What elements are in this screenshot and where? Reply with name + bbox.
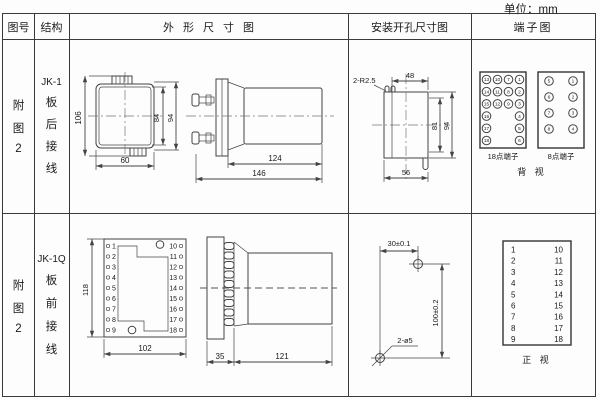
mounting-hole-bottom [128, 326, 136, 334]
terminal-number: 14 [554, 290, 563, 299]
page: 单位：mm 图号 结构 外形尺寸图 安装开孔尺寸图 端子图 附 图 2 JK-1… [0, 0, 600, 400]
terminal-screw [179, 297, 182, 300]
terminal-number: 4 [511, 279, 516, 288]
terminal-pin-number: 9 [507, 102, 510, 108]
terminal-number: 7 [112, 306, 116, 313]
dim-overall-height: 106 [74, 111, 83, 125]
terminal-pin-number: 10 [495, 77, 501, 83]
table-divider [3, 39, 595, 40]
terminal-number: 3 [112, 264, 116, 271]
dim-overall-height: 94 [442, 122, 451, 130]
relay-cover [248, 253, 332, 324]
relay-body-outline [118, 246, 168, 331]
terminal-pin-number: 14 [484, 89, 490, 95]
dim-inner-height: 81 [430, 122, 439, 130]
table-divider [69, 14, 70, 396]
terminal-number: 7 [511, 313, 516, 322]
terminal-screw-side [224, 300, 234, 307]
terminal-screw [106, 244, 109, 247]
terminal-pin-number: 6 [548, 95, 551, 101]
figure-char: 图 [13, 300, 25, 316]
terminal-pin-number: 17 [484, 126, 490, 132]
structure-char: 线 [46, 160, 58, 176]
mounting-hole-top [156, 241, 164, 249]
terminal-number: 9 [112, 327, 116, 334]
terminal-screw [179, 244, 182, 247]
terminal-number: 16 [554, 313, 563, 322]
terminal-number: 1 [511, 246, 516, 255]
terminal-number: 9 [511, 335, 516, 344]
terminal-number: 13 [169, 275, 177, 282]
terminal-screw [106, 297, 109, 300]
label-hole-size: 2-ø5 [397, 336, 412, 345]
terminal-screw [179, 286, 182, 289]
terminal-screw [106, 286, 109, 289]
terminal-pin-number: 4 [518, 114, 521, 120]
terminal-screw [106, 307, 109, 310]
dim-top-width: 48 [406, 71, 414, 80]
figure-cell-row1: 附 图 2 [3, 39, 34, 213]
terminal-pin-number: 16 [484, 114, 490, 120]
structure-char: 板 [46, 272, 58, 288]
terminal-number: 5 [112, 285, 116, 292]
stud-bottom [192, 132, 199, 144]
table-divider [471, 14, 472, 396]
label-corner-radius: 2-R2.5 [353, 76, 376, 85]
terminal-number: 13 [554, 279, 563, 288]
dim-width: 60 [121, 156, 130, 165]
terminal-screw-side [224, 271, 234, 278]
terminal-screw [179, 318, 182, 321]
label-18-point: 18点端子 [488, 151, 519, 161]
terminal-screw [106, 276, 109, 279]
figure-char: 图 [13, 120, 25, 136]
structure-model: JK-1 [41, 77, 62, 88]
header-terminal: 端子图 [471, 14, 595, 39]
structure-char: 板 [46, 94, 58, 110]
structure-char: 接 [46, 318, 58, 334]
terminal-pin-number: 15 [484, 102, 490, 108]
terminal-number: 8 [112, 317, 116, 324]
figure-char: 2 [15, 143, 21, 155]
terminal-screw [179, 265, 182, 268]
terminal-pin-number: 7 [548, 111, 551, 117]
terminal-screw [106, 265, 109, 268]
header-figure: 图号 [3, 14, 34, 39]
terminal-pin-number: 3 [572, 111, 575, 117]
stud-top [192, 94, 199, 106]
terminal-screw [179, 255, 182, 258]
terminal-screw-side [224, 319, 234, 326]
terminal-screw-side [224, 243, 234, 250]
dim-plate-depth: 35 [216, 352, 225, 361]
dim-overall-length: 146 [252, 169, 266, 178]
terminal-screw-side [224, 309, 234, 316]
terminal-screw [106, 255, 109, 258]
table-divider [3, 213, 595, 214]
terminal-screw [106, 318, 109, 321]
terminal-number: 11 [170, 254, 177, 261]
terminal-screw-side [224, 262, 234, 269]
terminal-diagram-rear: 131071141182151293164175186 51627384 18点… [478, 66, 590, 180]
terminal-screw [179, 307, 182, 310]
terminal-pin-number: 11 [495, 89, 500, 95]
terminal-pin-number: 2 [572, 95, 575, 101]
terminal-number: 17 [554, 324, 563, 333]
structure-char: 线 [46, 341, 58, 357]
label-rear-view: 背 视 [517, 166, 547, 177]
terminal-number: 18 [554, 335, 563, 344]
terminal-screw [179, 276, 182, 279]
terminal-number: 15 [169, 296, 177, 303]
structure-model: JK-1Q [37, 254, 65, 265]
dim-cover-length: 124 [268, 154, 282, 163]
terminal-number: 12 [554, 268, 563, 277]
header-outline: 外形尺寸图 [69, 14, 348, 39]
dim-height: 118 [81, 284, 90, 296]
structure-char: 前 [46, 295, 58, 311]
terminal-pin-number: 4 [572, 127, 575, 133]
terminal-screw-side [224, 252, 234, 259]
label-8-point: 8点端子 [548, 151, 575, 161]
terminal-number: 16 [169, 306, 177, 313]
terminal-number: 6 [511, 302, 516, 311]
figure-char: 附 [13, 97, 25, 113]
mounting-drawing-jk1: 2-R2.5 48 81 94 56 [350, 52, 468, 202]
figure-cell-row2: 附 图 2 [3, 213, 34, 398]
terminal-number: 1 [112, 243, 116, 250]
terminal-screw-side [224, 281, 234, 288]
structure-cell-row2: JK-1Q 板 前 接 线 [34, 213, 69, 398]
terminal-screw [179, 328, 182, 331]
terminal-number: 15 [554, 302, 563, 311]
table-divider [348, 14, 349, 396]
terminal-pin-number: 3 [518, 102, 521, 108]
terminal-pin-number: 12 [495, 102, 501, 108]
header-mounting: 安装开孔尺寸图 [348, 14, 471, 39]
dim-hole-spacing-v: 100±0.2 [431, 299, 440, 326]
dim-case-height: 84 [152, 114, 161, 122]
dim-bottom-width: 56 [402, 168, 410, 177]
terminal-screw [106, 328, 109, 331]
terminal-number: 4 [112, 275, 116, 282]
outline-drawing-jk1: 106 84 94 60 124 [76, 46, 341, 201]
mounting-drawing-jk1q: 30±0.1 2-ø5 100±0.2 [350, 236, 465, 391]
terminal-pin-number: 13 [484, 77, 490, 83]
terminal-block-top [112, 76, 132, 84]
terminal-number: 12 [169, 264, 177, 271]
outline-drawing-jk1q: 118 123456789101112131415161718 102 35 1… [82, 234, 337, 396]
terminal-number: 14 [169, 285, 177, 292]
dim-body-length: 121 [275, 352, 289, 361]
terminal-pin-number: 5 [548, 79, 551, 85]
terminal-number: 17 [169, 317, 177, 324]
terminal-number: 6 [112, 296, 116, 303]
terminal-number: 3 [511, 268, 516, 277]
structure-char: 后 [46, 116, 58, 132]
figure-char: 附 [13, 277, 25, 293]
dim-hole-spacing-h: 30±0.1 [388, 239, 411, 248]
label-front-view: 正 视 [522, 354, 552, 365]
dim-cover-height: 94 [166, 114, 175, 122]
terminal-pin-number: 7 [507, 77, 510, 83]
terminal-pin-number: 6 [518, 138, 521, 144]
terminal-screw-side [224, 290, 234, 297]
structure-char: 接 [46, 138, 58, 154]
terminal-number: 8 [511, 324, 516, 333]
terminal-number: 10 [554, 246, 563, 255]
terminal-number: 5 [511, 290, 516, 299]
terminal-pin-number: 2 [518, 89, 521, 95]
terminal-number: 18 [169, 327, 177, 334]
terminal-pin-number: 5 [518, 126, 521, 132]
figure-char: 2 [15, 323, 21, 335]
terminal-pin-number: 1 [572, 79, 575, 85]
terminal-diagram-front: 123456789101112131415161718 正 视 [495, 239, 595, 371]
dim-width: 102 [138, 344, 152, 353]
terminal-pin-number: 8 [548, 127, 551, 133]
structure-cell-row1: JK-1 板 后 接 线 [34, 39, 69, 213]
terminal-number: 10 [169, 243, 177, 250]
terminal-number: 11 [555, 257, 564, 266]
header-structure: 结构 [34, 14, 69, 39]
terminal-pin-number: 18 [484, 138, 490, 144]
terminal-pin-number: 8 [507, 89, 510, 95]
terminal-number: 2 [511, 257, 516, 266]
terminal-number: 2 [112, 254, 116, 261]
terminal-pin-number: 1 [518, 77, 521, 83]
